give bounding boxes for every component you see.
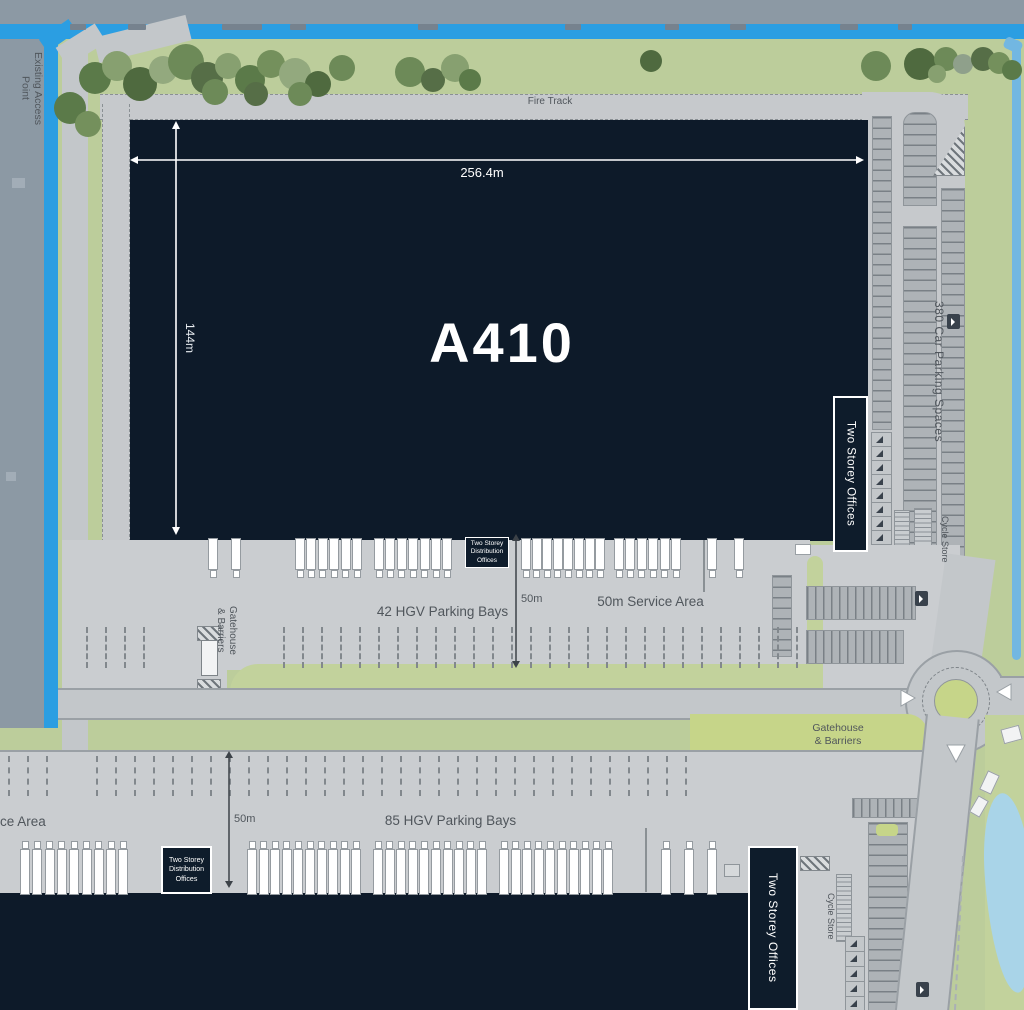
- tree-icon: [988, 52, 1010, 74]
- hgv-bays-label-upper: 42 HGV Parking Bays: [360, 604, 525, 620]
- service-depth-label-lower: 50m: [234, 813, 255, 826]
- building-lower: [0, 893, 748, 1010]
- distribution-offices-label-upper: Two Storey Distribution Offices: [471, 540, 504, 564]
- service-area-label-lower: ce Area: [0, 814, 46, 830]
- offsite-building: [6, 472, 16, 481]
- distribution-offices-box-upper: Two Storey Distribution Offices: [465, 537, 509, 568]
- utility-box: [724, 864, 740, 877]
- cycle-stand: [836, 874, 852, 942]
- fire-track-west: [102, 104, 130, 542]
- gatehouse-label-lower: Gatehouse & Barriers: [796, 722, 880, 747]
- distribution-offices-box-lower: Two Storey Distribution Offices: [161, 846, 212, 894]
- tree-icon: [934, 47, 958, 71]
- yard-verge-east: [807, 556, 823, 690]
- parking-row: [806, 630, 904, 664]
- building-name: A410: [332, 312, 672, 374]
- dock-divider: [645, 828, 647, 892]
- cycle-store-label-lower: Cycle Store: [818, 884, 836, 948]
- cycle-store-label-upper: Cycle Store: [932, 506, 950, 572]
- hgv-bays-label-lower: 85 HGV Parking Bays: [368, 813, 533, 829]
- two-storey-offices-box-lower: Two Storey Offices: [748, 846, 798, 1010]
- two-storey-offices-label-main: Two Storey Offices: [845, 421, 857, 526]
- tree-icon: [395, 57, 425, 87]
- tree-icon: [441, 54, 469, 82]
- tree-icon: [971, 47, 995, 71]
- parking-end-island: [876, 824, 898, 836]
- stair-platform: [795, 544, 811, 555]
- fire-track-label: Fire Track: [480, 96, 620, 108]
- stream: [1012, 40, 1021, 660]
- tree-icon: [257, 50, 285, 78]
- parking-row: [772, 575, 792, 657]
- gatehouse-label-upper: Gatehouse & Barriers: [206, 584, 238, 676]
- tree-icon: [928, 65, 946, 83]
- tree-icon: [168, 44, 204, 80]
- tree-icon: [235, 65, 265, 95]
- distribution-offices-label-lower: Two Storey Distribution Offices: [169, 856, 204, 883]
- tree-icon: [149, 56, 177, 84]
- car-parking-spaces-label: 380 Car Parking Spaces: [924, 292, 946, 452]
- tree-icon: [191, 62, 223, 94]
- cycle-stand: [894, 510, 910, 550]
- tree-icon: [215, 53, 241, 79]
- existing-access-point-label: Existing Access Point: [10, 36, 44, 140]
- tree-icon: [640, 50, 662, 72]
- building-depth-label: 144m: [179, 298, 197, 378]
- tree-icon: [329, 55, 355, 81]
- service-depth-label-upper: 50m: [521, 593, 542, 606]
- two-storey-offices-box-main: Two Storey Offices: [833, 396, 868, 552]
- tree-icon: [459, 69, 481, 91]
- tree-icon: [279, 58, 311, 90]
- parking-row: [903, 112, 937, 206]
- building-width-label: 256.4m: [432, 165, 532, 181]
- two-storey-offices-label-lower: Two Storey Offices: [766, 873, 780, 982]
- offsite-building: [12, 178, 25, 188]
- parking-row: [872, 116, 892, 430]
- tree-icon: [904, 48, 936, 80]
- tree-icon: [953, 54, 973, 74]
- pedestrian-crossing: [800, 856, 830, 871]
- service-area-label-upper: 50m Service Area: [578, 594, 723, 610]
- parking-row: [806, 586, 916, 620]
- tree-icon: [861, 51, 891, 81]
- site-masterplan: Two Storey Offices Two Storey Distributi…: [0, 0, 1024, 1010]
- main-road-left: [44, 42, 58, 728]
- tree-icon: [421, 68, 445, 92]
- yard-divider-wall: [703, 540, 705, 592]
